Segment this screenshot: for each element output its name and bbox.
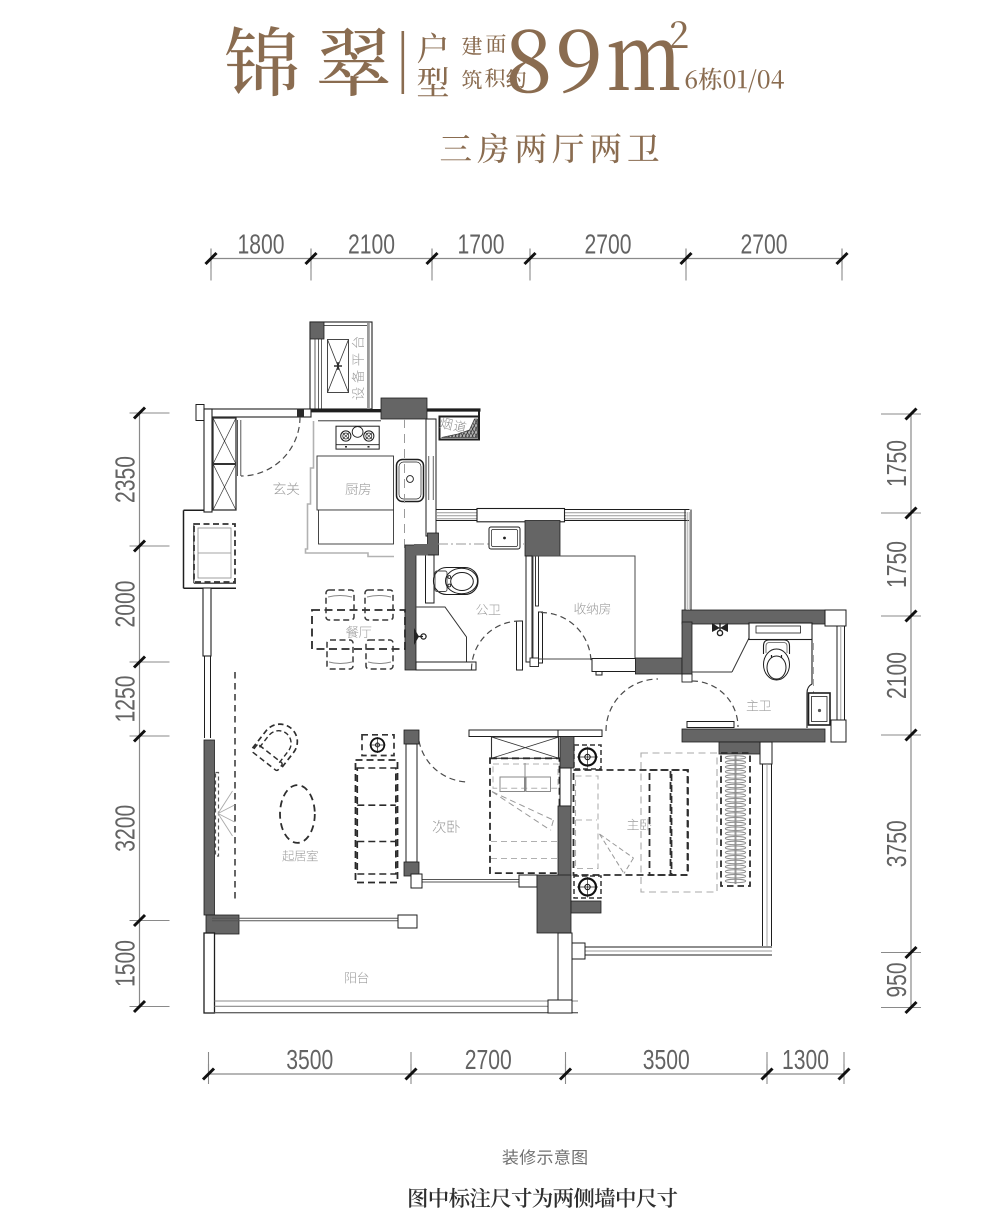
- svg-text:2100: 2100: [881, 652, 912, 699]
- svg-text:3500: 3500: [286, 1044, 333, 1075]
- svg-text:3500: 3500: [643, 1044, 690, 1075]
- svg-text:2700: 2700: [741, 229, 788, 260]
- svg-text:1500: 1500: [110, 940, 141, 987]
- svg-text:2700: 2700: [465, 1044, 512, 1075]
- svg-text:2100: 2100: [348, 229, 395, 260]
- svg-text:1700: 1700: [458, 229, 505, 260]
- svg-text:2700: 2700: [585, 229, 632, 260]
- svg-text:1300: 1300: [782, 1044, 829, 1075]
- svg-text:950: 950: [881, 963, 912, 998]
- svg-text:1750: 1750: [881, 541, 912, 588]
- svg-text:3200: 3200: [110, 805, 141, 852]
- svg-text:1800: 1800: [238, 229, 285, 260]
- svg-text:2350: 2350: [110, 456, 141, 503]
- svg-text:1750: 1750: [881, 440, 912, 487]
- svg-text:2000: 2000: [110, 581, 141, 628]
- svg-text:1250: 1250: [110, 676, 141, 723]
- svg-text:3750: 3750: [881, 820, 912, 867]
